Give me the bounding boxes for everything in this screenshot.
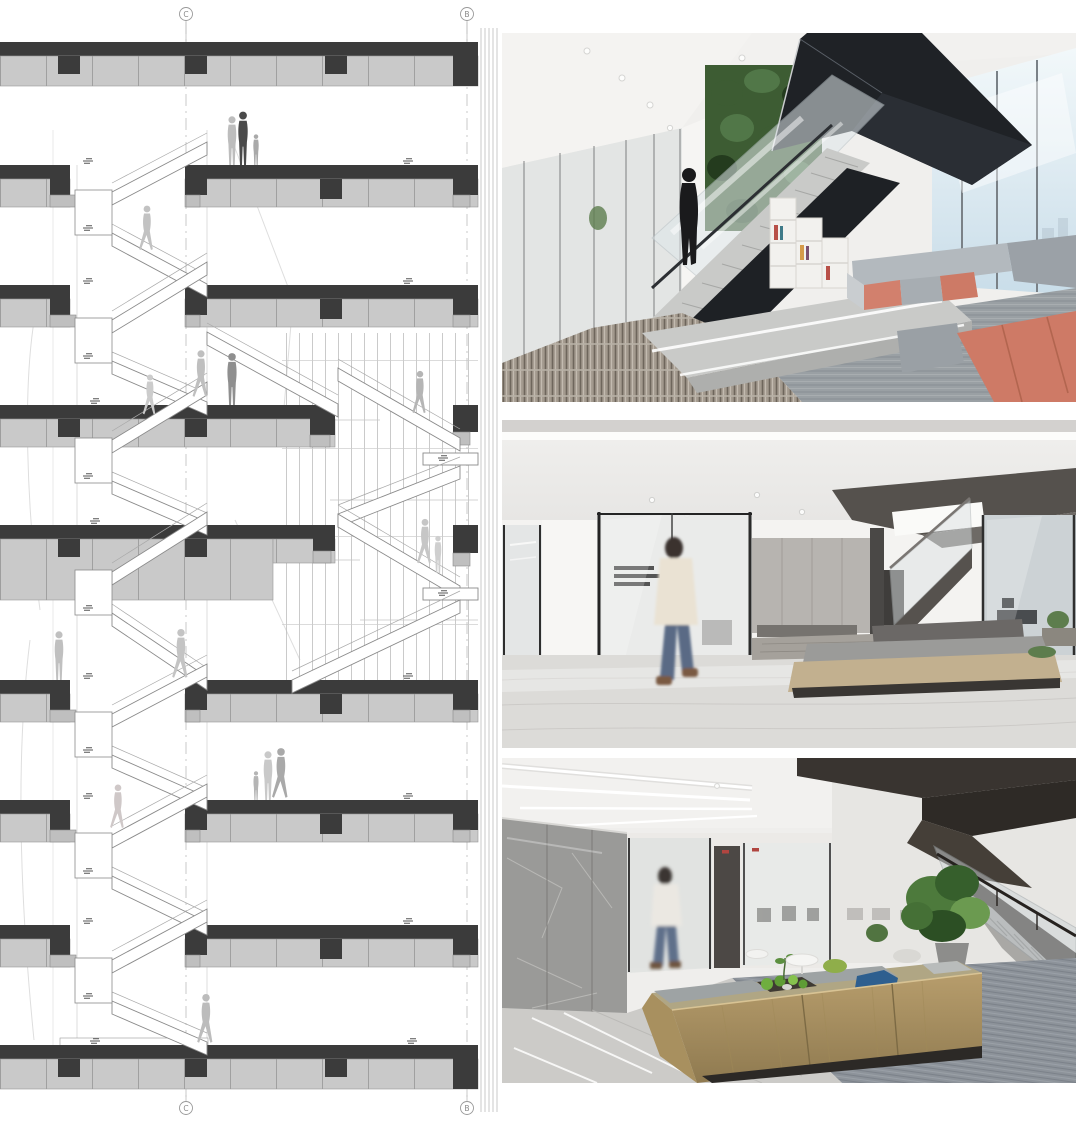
grid-label-bottom-right: B	[464, 1104, 469, 1113]
floor-slab	[0, 42, 478, 86]
photo-lobby-bench	[502, 420, 1076, 748]
photo-stair-lounge	[502, 33, 1076, 402]
floor-slab	[0, 1038, 478, 1089]
corridor-plant	[589, 206, 607, 230]
coral-cushion	[864, 280, 902, 310]
green-stool	[823, 959, 847, 973]
plant	[1047, 611, 1069, 629]
cabinet-wall	[752, 528, 884, 638]
grid-label-top-left: C	[183, 10, 188, 19]
dark-column	[870, 528, 884, 638]
grid-label-top-right: B	[464, 10, 469, 19]
presentation-board: C B C B	[0, 0, 1080, 1121]
section-drawing: C B C B	[0, 0, 500, 1121]
dark-door	[714, 846, 740, 968]
grid-label-bottom-left: C	[183, 1104, 188, 1113]
exit-sign	[722, 850, 729, 854]
left-glass-partition	[502, 512, 752, 678]
top-band	[502, 420, 1076, 432]
white-rock	[893, 949, 921, 963]
bench-planter	[1028, 646, 1056, 658]
photo-corridor-planter	[502, 758, 1076, 1083]
cove-light	[502, 432, 1076, 440]
